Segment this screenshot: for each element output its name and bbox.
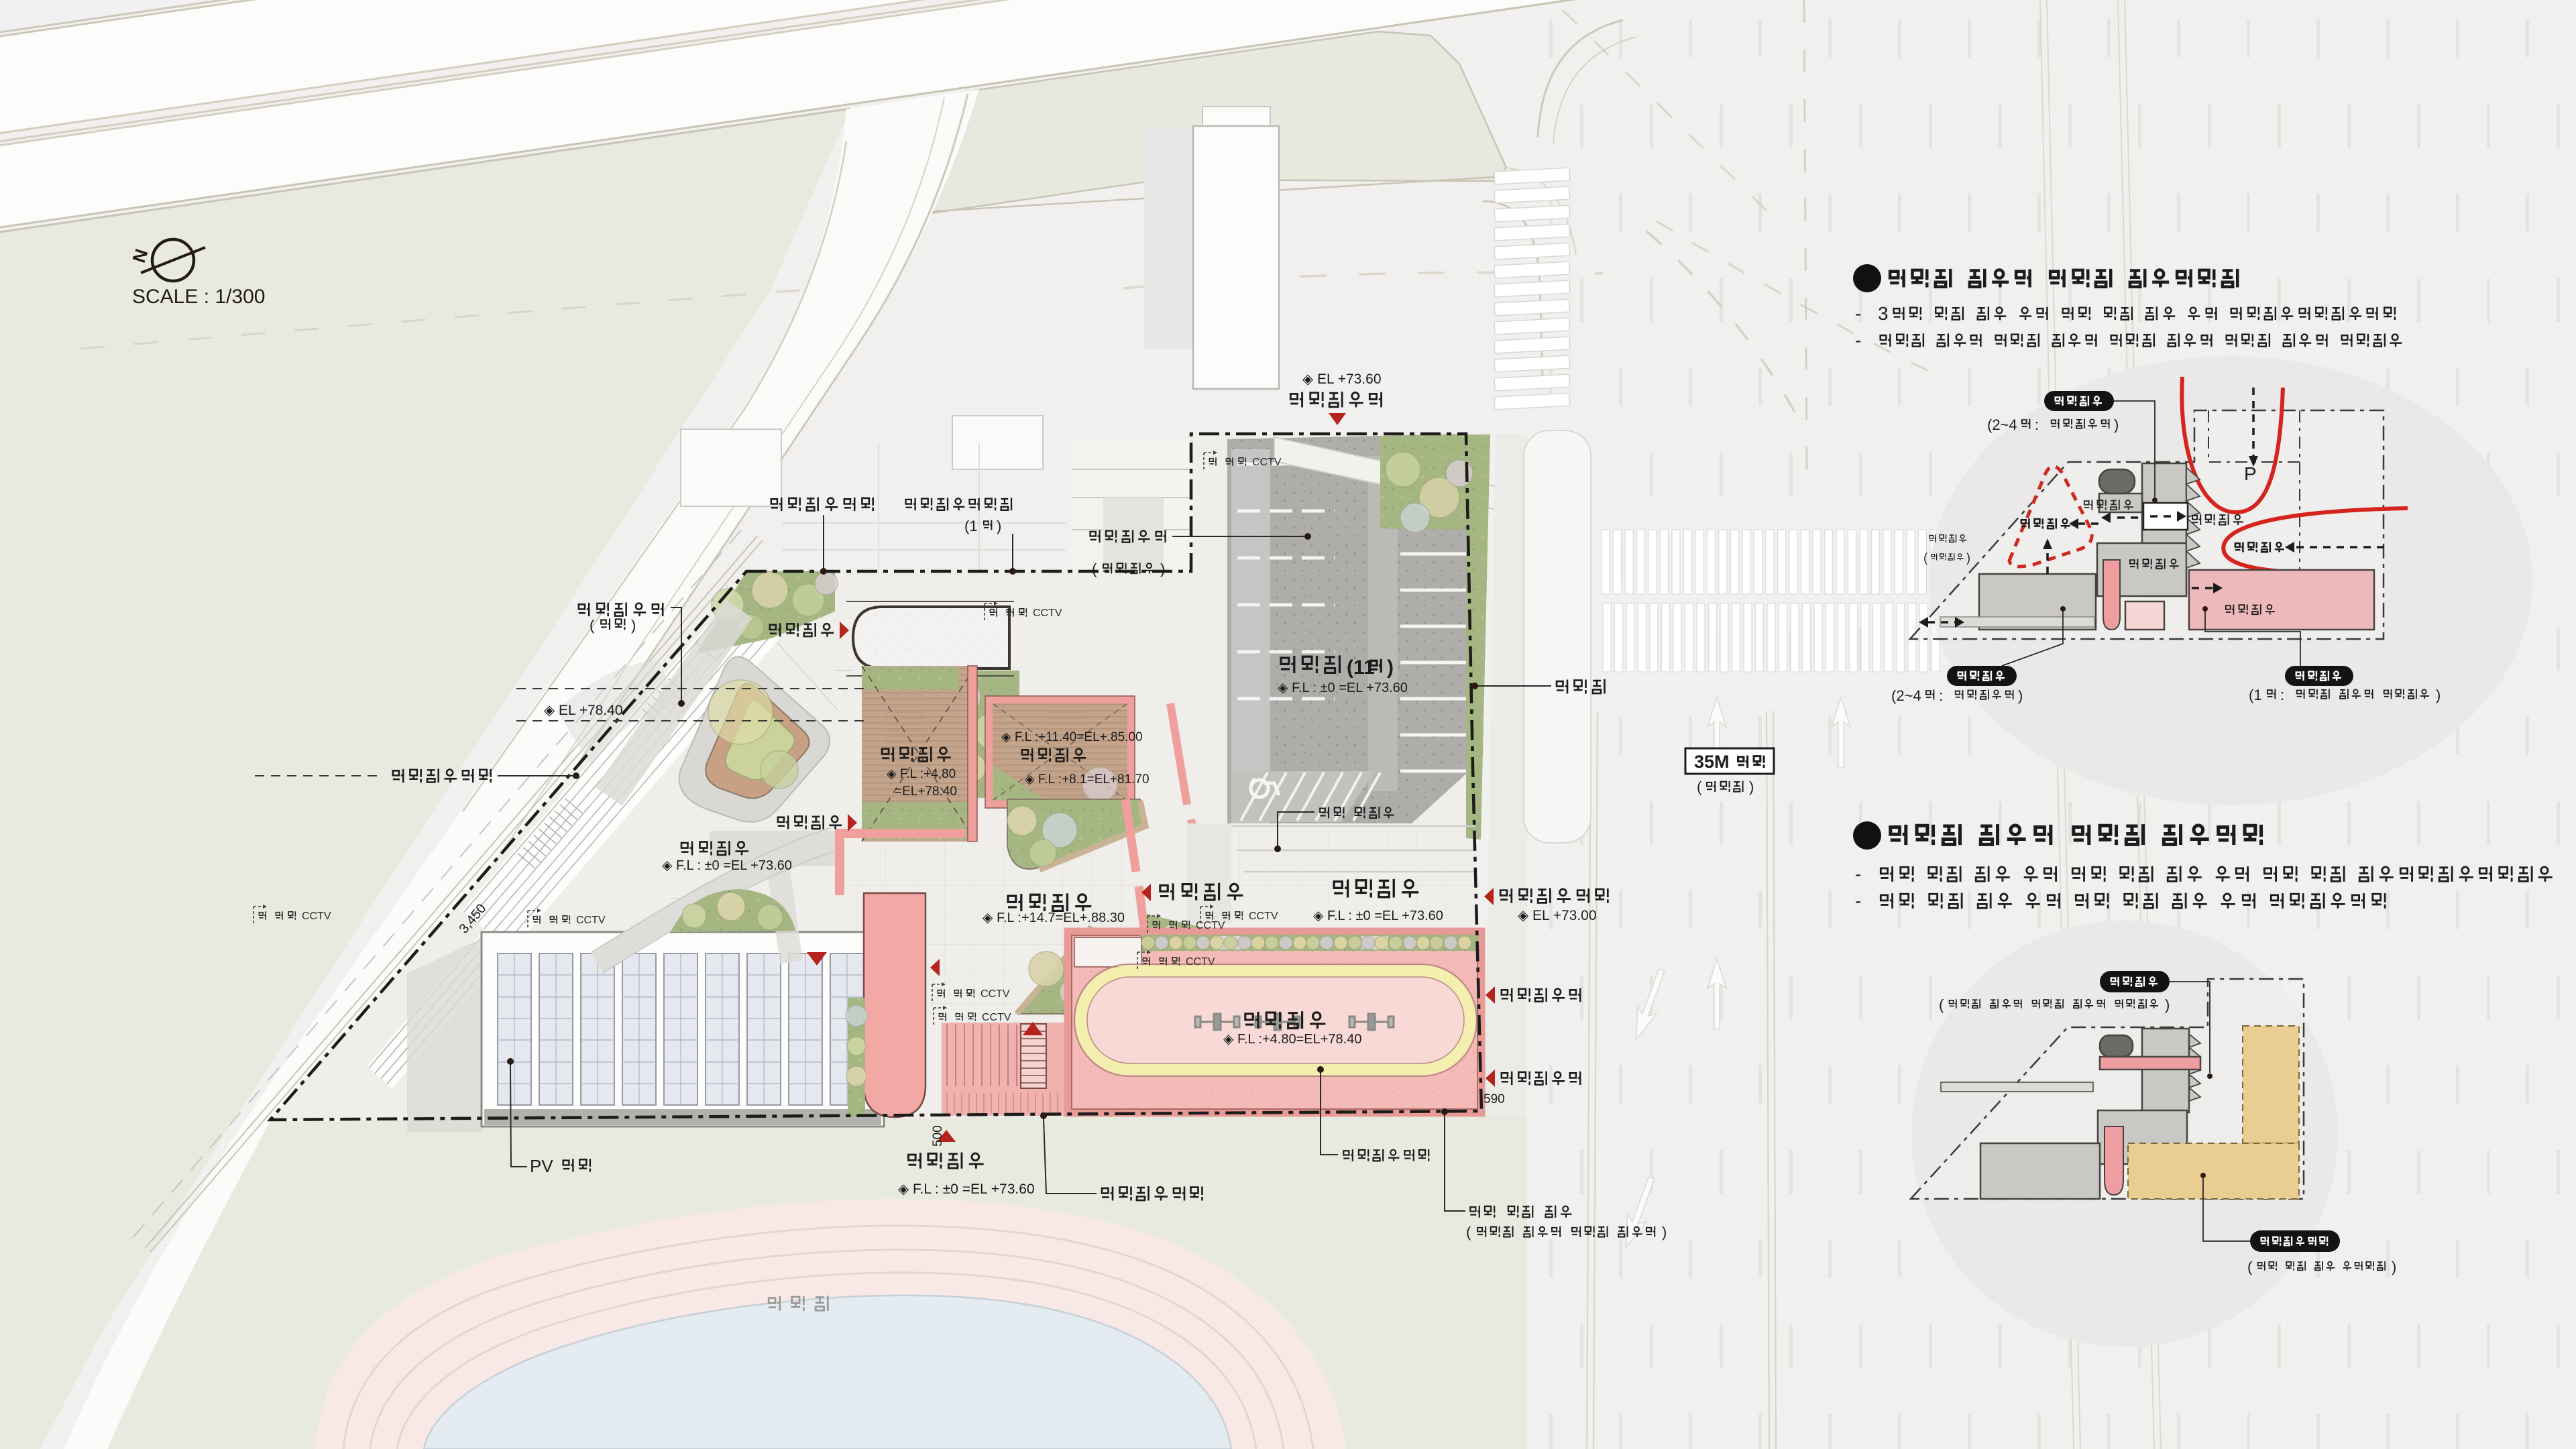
svg-text::: : [1939,687,1943,704]
svg-text:(1: (1 [964,518,978,534]
svg-text:): ) [1387,656,1394,679]
svg-text:◈ F.L :+14.7=EL+.88.30: ◈ F.L :+14.7=EL+.88.30 [983,911,1125,925]
svg-text:CCTV: CCTV [302,911,331,922]
svg-text:◈ F.L :+4,80: ◈ F.L :+4,80 [887,767,956,781]
svg-text:): ) [1160,561,1165,577]
svg-text:◈ F.L : ±0 =EL +73.60: ◈ F.L : ±0 =EL +73.60 [1278,681,1408,695]
svg-text:CCTV: CCTV [981,988,1010,1000]
svg-text:CCTV: CCTV [1249,911,1278,922]
svg-text:(2~4: (2~4 [1987,416,2017,433]
svg-text:500: 500 [931,1125,945,1147]
svg-text:): ) [2436,687,2441,703]
svg-text:): ) [1662,1224,1667,1240]
svg-text:CCTV: CCTV [1252,457,1282,468]
svg-text:): ) [631,617,636,634]
svg-text:): ) [997,518,1001,534]
svg-text:): ) [2114,416,2119,433]
svg-text:35M: 35M [1694,752,1730,772]
svg-text:SCALE : 1/300: SCALE : 1/300 [132,286,265,308]
svg-text:P: P [2244,463,2257,484]
svg-text:): ) [1966,551,1970,565]
svg-text:PV: PV [530,1156,553,1176]
svg-text:(: ( [1939,996,1944,1013]
svg-text:CCTV: CCTV [982,1012,1011,1023]
svg-text:◈ F.L : ±0 =EL +73.60: ◈ F.L : ±0 =EL +73.60 [1313,909,1443,923]
svg-text:◈ F.L :+11.40=EL+.85.00: ◈ F.L :+11.40=EL+.85.00 [1001,730,1143,744]
svg-text:3: 3 [1878,303,1889,324]
svg-text:CCTV: CCTV [576,915,606,926]
svg-text:(: ( [2247,1259,2253,1275]
svg-text:◈ F.L :+8.1=EL+81.70: ◈ F.L :+8.1=EL+81.70 [1025,772,1150,787]
svg-text:-: - [1855,890,1861,911]
svg-text:◈ EL +78.40: ◈ EL +78.40 [544,703,623,718]
svg-text:◈ F.L : ±0 =EL +73.60: ◈ F.L : ±0 =EL +73.60 [898,1181,1035,1197]
svg-text:(2~4: (2~4 [1891,687,1921,704]
svg-text:): ) [1749,778,1754,795]
svg-text:-: - [1855,303,1861,324]
svg-text:): ) [2392,1259,2396,1275]
svg-text:-: - [1855,330,1861,351]
svg-text:◈ F.L : ±0 =EL +73.60: ◈ F.L : ±0 =EL +73.60 [662,858,792,873]
svg-text:(: ( [1466,1224,1471,1240]
svg-text:(: ( [1923,551,1927,565]
svg-text:(: ( [590,617,595,634]
svg-text::: : [2280,687,2284,703]
svg-text:-: - [1855,864,1861,884]
svg-text:◈ F.L :+4.80=EL+78.40: ◈ F.L :+4.80=EL+78.40 [1223,1032,1361,1047]
svg-text:CCTV: CCTV [1186,956,1215,968]
svg-text:590: 590 [1483,1092,1505,1106]
svg-text:◈ EL +73.00: ◈ EL +73.00 [1518,908,1597,923]
svg-text:(1: (1 [2249,687,2262,703]
svg-text:CCTV: CCTV [1033,607,1062,619]
svg-text:(: ( [1092,561,1097,577]
svg-text:=EL+78.40: =EL+78.40 [895,785,957,799]
svg-text::: : [2035,416,2039,433]
svg-text:): ) [2165,996,2170,1013]
svg-text:(: ( [1697,778,1702,795]
svg-text:◈ EL +73.60: ◈ EL +73.60 [1302,371,1382,387]
svg-text:): ) [2018,687,2023,704]
